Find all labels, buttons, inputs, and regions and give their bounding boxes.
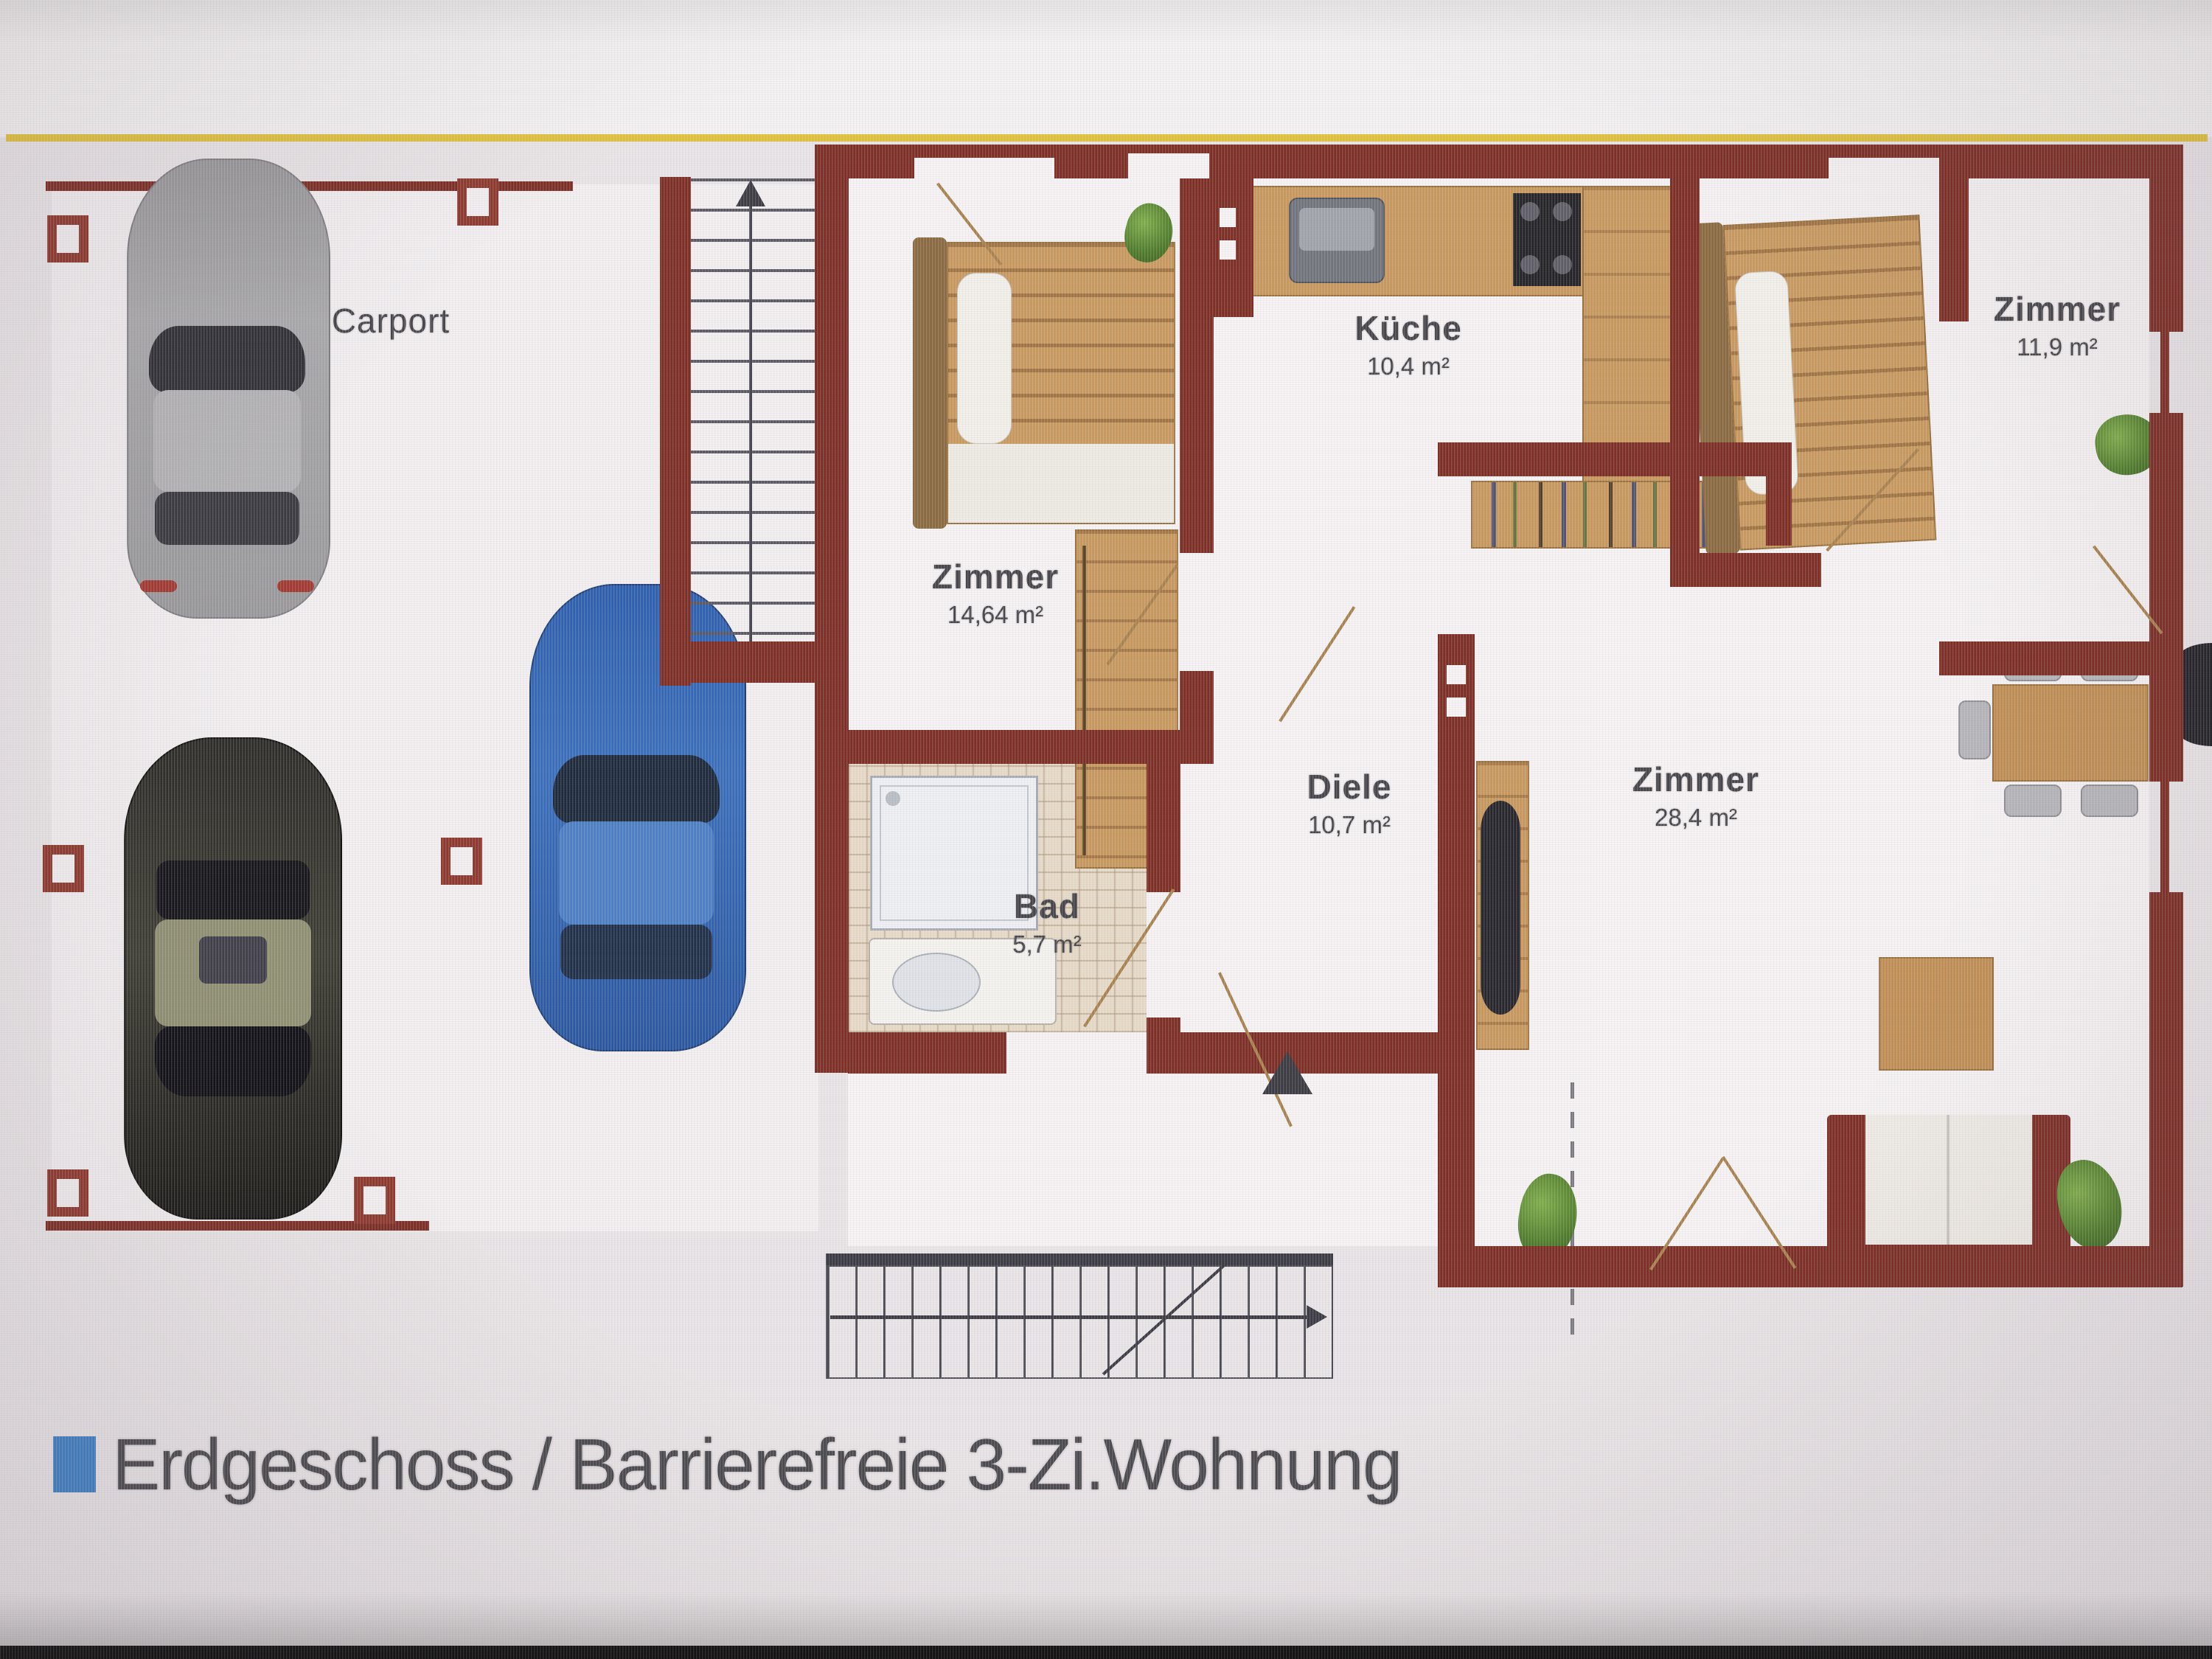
kitchen-stove bbox=[1513, 193, 1581, 286]
dining-table bbox=[1992, 684, 2149, 782]
kitchen-sink bbox=[1289, 198, 1385, 283]
room-label-kueche: Küche 10,4 m² bbox=[1327, 308, 1489, 380]
chair bbox=[2081, 785, 2138, 817]
bed bbox=[913, 237, 1178, 529]
wall-niche bbox=[1447, 665, 1466, 684]
car-rear-window bbox=[155, 492, 299, 545]
bed-pillow bbox=[957, 273, 1012, 444]
car-windshield bbox=[155, 1026, 311, 1096]
room-label-zimmer2: Zimmer 11,9 m² bbox=[1976, 289, 2138, 361]
room-name: Diele bbox=[1268, 767, 1430, 807]
stair-direction-arrow-icon bbox=[736, 180, 765, 206]
car-sunroof bbox=[199, 936, 267, 984]
room-name: Zimmer bbox=[907, 557, 1084, 597]
wall-left bbox=[815, 145, 849, 1073]
car-windshield bbox=[553, 755, 720, 823]
carport-post bbox=[43, 845, 84, 892]
caption-bullet bbox=[53, 1436, 96, 1492]
car-rear-window bbox=[560, 925, 712, 979]
room-label-zimmer1: Zimmer 14,64 m² bbox=[907, 557, 1084, 629]
coffee-table bbox=[1879, 957, 1994, 1071]
room-name: Zimmer bbox=[1607, 759, 1784, 799]
window-opening bbox=[914, 158, 1054, 178]
room-area: 10,4 m² bbox=[1327, 352, 1489, 380]
stairwell-left-wall bbox=[660, 177, 691, 686]
floorplan-photo: Carport Zimmer 14,64 m² Küche 10,4 m² Zi… bbox=[0, 0, 2212, 1659]
wall-room1-bath bbox=[815, 730, 1180, 764]
room-area: 14,64 m² bbox=[907, 601, 1084, 629]
wall-right bbox=[2149, 413, 2183, 782]
room-name: Carport bbox=[295, 301, 487, 341]
wall-zimmer119-bottom bbox=[1939, 641, 2183, 675]
carport-post bbox=[47, 1169, 88, 1217]
wall-right bbox=[2149, 892, 2183, 1287]
wall-right bbox=[2149, 145, 2183, 332]
car-gray bbox=[127, 159, 330, 619]
wall-kitchen-bedroom bbox=[1670, 177, 1700, 586]
window-line bbox=[2160, 782, 2169, 892]
entry-opening bbox=[1128, 153, 1209, 178]
bed-sheet bbox=[948, 444, 1174, 523]
washbasin bbox=[892, 953, 981, 1012]
room-label-carport: Carport bbox=[295, 301, 487, 341]
car-taillight bbox=[277, 580, 314, 592]
wall-room1-right bbox=[1180, 671, 1214, 764]
wall-kitchen-stub bbox=[1766, 442, 1792, 546]
room-area: 5,7 m² bbox=[981, 931, 1113, 959]
carport-post bbox=[354, 1177, 395, 1224]
room-area: 28,4 m² bbox=[1607, 804, 1784, 832]
staircase-top bbox=[691, 178, 815, 665]
staircase-bottom bbox=[826, 1253, 1333, 1379]
window-line bbox=[2160, 332, 2169, 413]
bed bbox=[1688, 212, 1938, 555]
chair bbox=[1958, 700, 1991, 759]
car-dark bbox=[124, 737, 342, 1220]
car-windshield bbox=[149, 326, 305, 392]
dark-panel bbox=[1481, 801, 1520, 1015]
carport-post bbox=[457, 178, 498, 226]
room-area: 11,9 m² bbox=[1976, 333, 2138, 361]
sofa-cushions bbox=[1865, 1115, 2032, 1245]
car-roof bbox=[559, 821, 714, 925]
carport-post bbox=[47, 215, 88, 262]
top-band bbox=[0, 0, 2212, 137]
staircase-top-centerline bbox=[749, 204, 752, 665]
wall-bedroom-partition bbox=[1939, 145, 1969, 321]
wall-bottom bbox=[1438, 1246, 2183, 1287]
carport-post bbox=[441, 838, 482, 885]
wall-diele-living bbox=[1438, 634, 1475, 1287]
room-name: Zimmer bbox=[1976, 289, 2138, 329]
room-name: Küche bbox=[1327, 308, 1489, 348]
caption-text: Erdgeschoss / Barrierefreie 3-Zi.Wohnung bbox=[112, 1423, 2103, 1506]
car-rear-window bbox=[156, 860, 310, 919]
room-name: Bad bbox=[981, 886, 1113, 926]
wall-bath-diele bbox=[1147, 764, 1180, 892]
car-taillight bbox=[140, 580, 177, 592]
monitor-bezel bbox=[0, 1646, 2212, 1659]
entry-door-pivot bbox=[1220, 208, 1236, 227]
car-roof bbox=[153, 390, 301, 492]
wall-niche bbox=[1447, 698, 1466, 717]
chair bbox=[2004, 785, 2062, 817]
room-area: 10,7 m² bbox=[1268, 811, 1430, 839]
stair-run-arrow-icon bbox=[1307, 1305, 1327, 1329]
room-label-zimmer3: Zimmer 28,4 m² bbox=[1607, 759, 1784, 832]
yellow-rule bbox=[6, 134, 2208, 142]
entry-door-pivot bbox=[1220, 240, 1236, 260]
room-label-diele: Diele 10,7 m² bbox=[1268, 767, 1430, 839]
entrance-arrow-icon bbox=[1262, 1051, 1312, 1094]
wall-bedroom-bottom bbox=[1670, 553, 1821, 587]
bed-headboard bbox=[913, 237, 947, 529]
wall-kitchen-bottom bbox=[1438, 442, 1792, 476]
window-opening bbox=[1829, 158, 1939, 178]
room-label-bad: Bad 5,7 m² bbox=[981, 886, 1113, 959]
wall-bath-bottom bbox=[848, 1032, 1006, 1074]
